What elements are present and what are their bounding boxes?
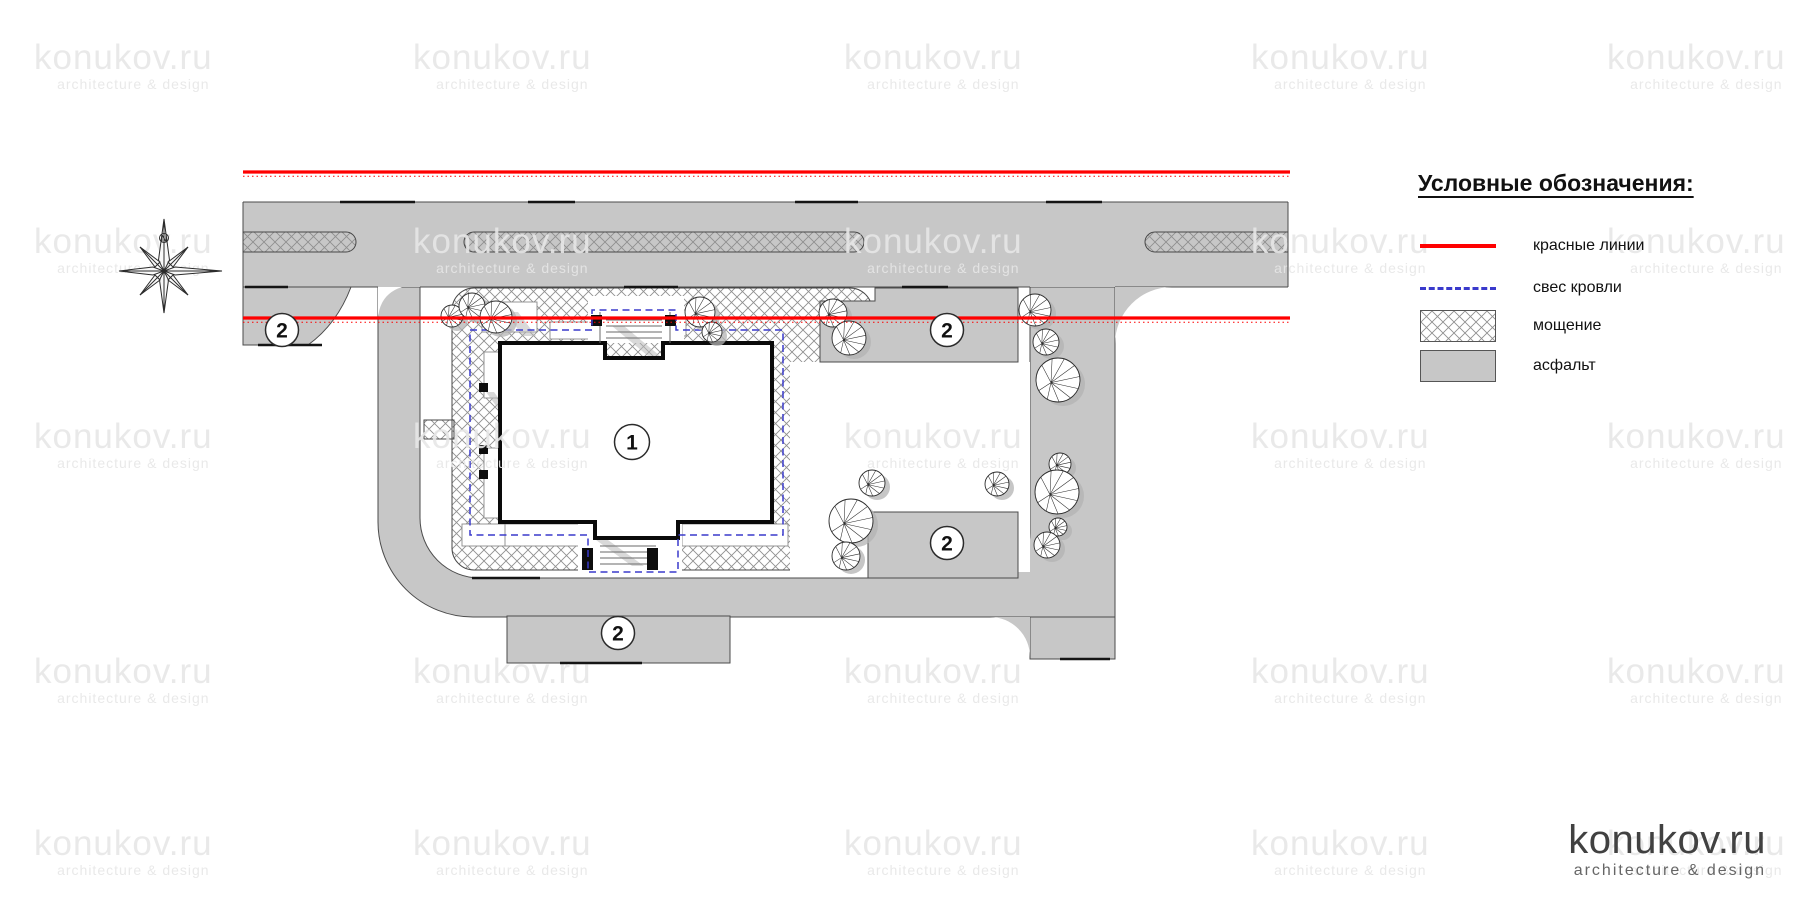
badge-area-2: 2 bbox=[266, 314, 299, 347]
legend-item-asphalt: асфальт bbox=[1420, 350, 1596, 382]
north-compass-icon: N bbox=[100, 205, 230, 335]
paved-walkway-stub bbox=[424, 420, 454, 439]
svg-text:N: N bbox=[161, 234, 168, 244]
site-plan-drawing: 1 2 2 2 2 bbox=[0, 0, 1800, 900]
asphalt-road-south-stub bbox=[1030, 617, 1115, 659]
hatch-swatch-icon bbox=[1420, 310, 1496, 342]
legend-item-roof-overhang: свес кровли bbox=[1420, 272, 1622, 304]
legend-title: Условные обозначения: bbox=[1418, 170, 1778, 197]
badge-area-2: 2 bbox=[931, 314, 964, 347]
brand-tagline: architecture & design bbox=[1568, 863, 1766, 879]
brand-logo: konukov.ru architecture & design bbox=[1568, 820, 1766, 879]
site-plan-page: 1 2 2 2 2 konukov.ruarchitecture & desig… bbox=[0, 0, 1800, 900]
legend-item-red-lines: красные линии bbox=[1420, 230, 1644, 262]
wall-pillar bbox=[479, 445, 488, 454]
svg-text:2: 2 bbox=[612, 623, 624, 646]
badge-building-1: 1 bbox=[615, 425, 650, 460]
brand-name: konukov.ru bbox=[1568, 820, 1766, 860]
svg-text:2: 2 bbox=[276, 320, 288, 343]
svg-text:2: 2 bbox=[941, 533, 953, 556]
wall-pillar bbox=[479, 383, 488, 392]
asphalt-swatch-icon bbox=[1420, 350, 1496, 382]
red-line-swatch-icon bbox=[1420, 244, 1496, 248]
wall-pillar bbox=[479, 470, 488, 479]
badge-area-2: 2 bbox=[602, 617, 635, 650]
badge-area-2: 2 bbox=[931, 527, 964, 560]
legend-item-paving: мощение bbox=[1420, 310, 1601, 342]
porch-pillar bbox=[647, 548, 658, 570]
svg-text:2: 2 bbox=[941, 320, 953, 343]
legend: Условные обозначения: красные линии свес… bbox=[1418, 170, 1778, 197]
svg-text:1: 1 bbox=[626, 432, 638, 455]
dashed-line-swatch-icon bbox=[1420, 287, 1496, 290]
